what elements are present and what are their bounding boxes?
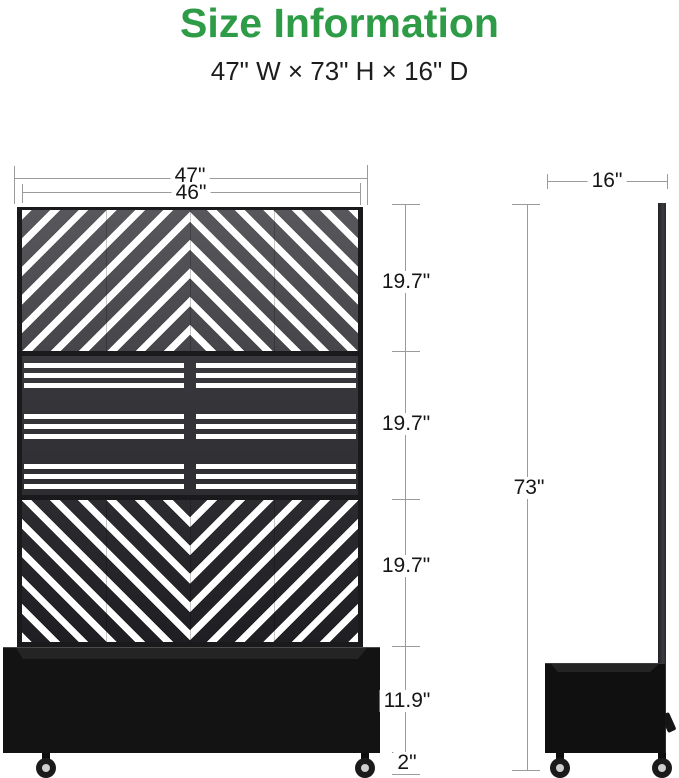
dimension-extension-line (667, 174, 668, 189)
caster-wheel-side-right (649, 753, 675, 778)
panel2-height-label: 19.7" (378, 413, 434, 435)
caster-wheel-side-left (547, 753, 573, 778)
overall-dimensions-text: 47" W × 73" H × 16" D (0, 56, 679, 87)
dimension-extension-line (367, 165, 368, 205)
caster-wheel-front-left (33, 753, 59, 778)
wheel-icon (355, 758, 375, 778)
horizontal-slats (24, 363, 184, 388)
planter-box-front (3, 647, 380, 753)
size-information-diagram: Size Information 47" W × 73" H × 16" D 4… (0, 0, 679, 778)
planter-height-label: 11.9" (380, 690, 435, 712)
panel1-height-label: 19.7" (378, 271, 434, 293)
dimension-extension-line (360, 183, 361, 205)
horizontal-slats (196, 464, 356, 489)
panel3-height-label: 19.7" (378, 555, 434, 577)
wheel-icon (36, 758, 56, 778)
chevron-panel-bottom (22, 500, 358, 642)
planter-box-side (545, 663, 665, 753)
horizontal-slats (24, 414, 184, 439)
privacy-screen-front (17, 207, 363, 647)
planter-opening (551, 664, 659, 672)
dimension-extension-line (22, 184, 23, 203)
planter-opening (16, 648, 367, 659)
depth-label: 16" (588, 170, 627, 192)
chevron-panel-top (22, 210, 358, 351)
wheel-icon (652, 758, 672, 778)
dimension-extension-line (547, 174, 548, 189)
horizontal-slats (196, 414, 356, 439)
caster-wheel-front-right (352, 753, 378, 778)
slat-panel-middle (22, 356, 358, 495)
caster-height-label: 2" (393, 752, 420, 774)
page-title: Size Information (0, 1, 679, 46)
total-height-label: 73" (510, 477, 549, 499)
panel-width-label: 46" (172, 182, 211, 204)
dimension-extension-line (14, 166, 15, 204)
wheel-icon (550, 758, 570, 778)
horizontal-slats (196, 363, 356, 388)
horizontal-slats (24, 464, 184, 489)
